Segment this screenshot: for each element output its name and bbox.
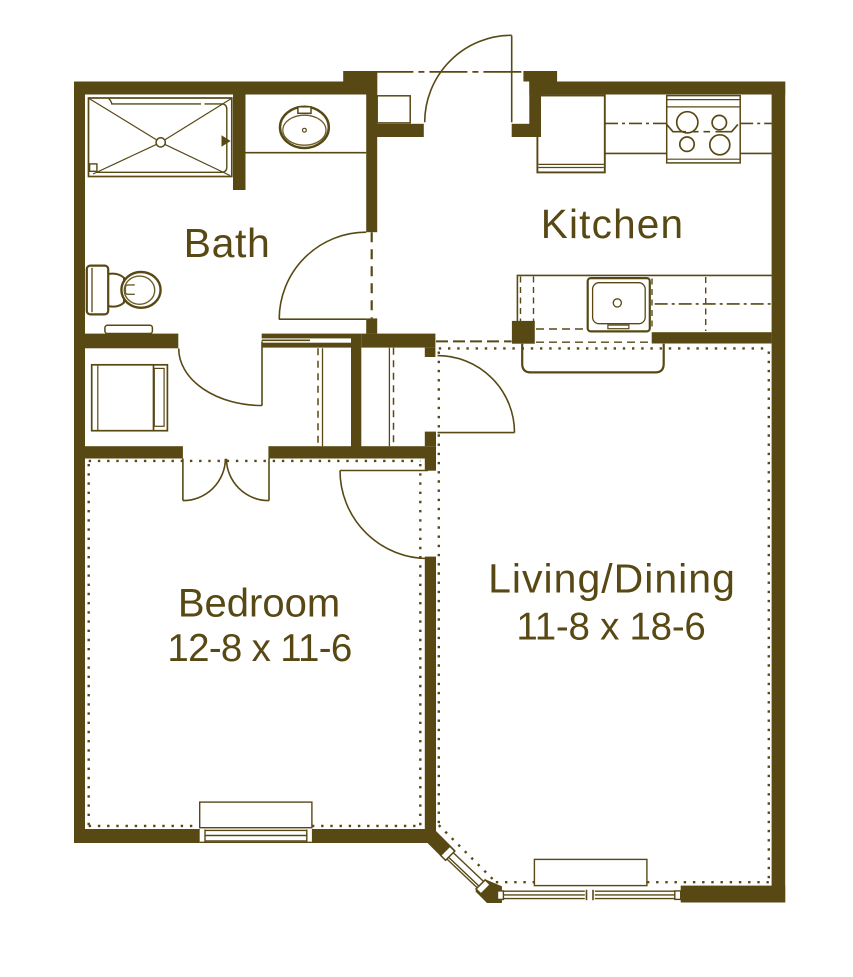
svg-text:12-8 x 11-6: 12-8 x 11-6 [167, 627, 351, 670]
svg-text:Bedroom: Bedroom [178, 581, 340, 625]
svg-text:Bath: Bath [184, 220, 271, 266]
svg-text:11-8 x 18-6: 11-8 x 18-6 [516, 605, 705, 648]
svg-text:Kitchen: Kitchen [541, 201, 685, 247]
svg-text:Living/Dining: Living/Dining [488, 556, 736, 602]
